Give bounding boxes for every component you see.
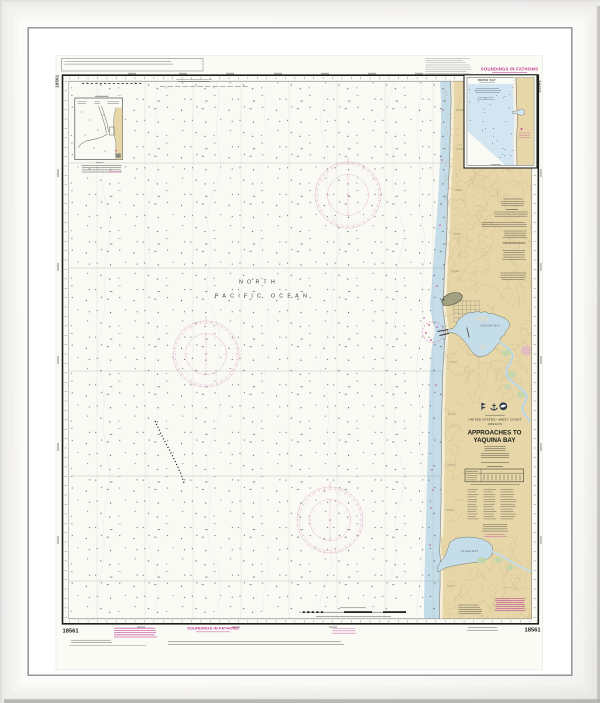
- svg-text:OREGON: OREGON: [488, 422, 503, 426]
- svg-text:SOUNDINGS IN FATHOMS: SOUNDINGS IN FATHOMS: [187, 626, 239, 631]
- svg-text:18561: 18561: [55, 74, 61, 88]
- svg-text:APPROACHES TO: APPROACHES TO: [468, 430, 522, 437]
- svg-text:YAQUINA BAY: YAQUINA BAY: [474, 437, 517, 444]
- svg-text:SOUNDINGS IN FATHOMS: SOUNDINGS IN FATHOMS: [481, 66, 538, 71]
- svg-text:UNITED STATES—WEST COAST: UNITED STATES—WEST COAST: [468, 417, 521, 421]
- svg-text:18561: 18561: [525, 627, 542, 633]
- svg-text:ALSEA BAY: ALSEA BAY: [461, 550, 478, 553]
- svg-text:18561: 18561: [63, 629, 80, 635]
- svg-text:NORTH: NORTH: [239, 280, 279, 286]
- svg-text:PACIFIC OCEAN: PACIFIC OCEAN: [215, 294, 311, 300]
- svg-text:DEPOE BAY: DEPOE BAY: [478, 79, 496, 82]
- svg-text:YAQUINA BAY: YAQUINA BAY: [479, 325, 500, 328]
